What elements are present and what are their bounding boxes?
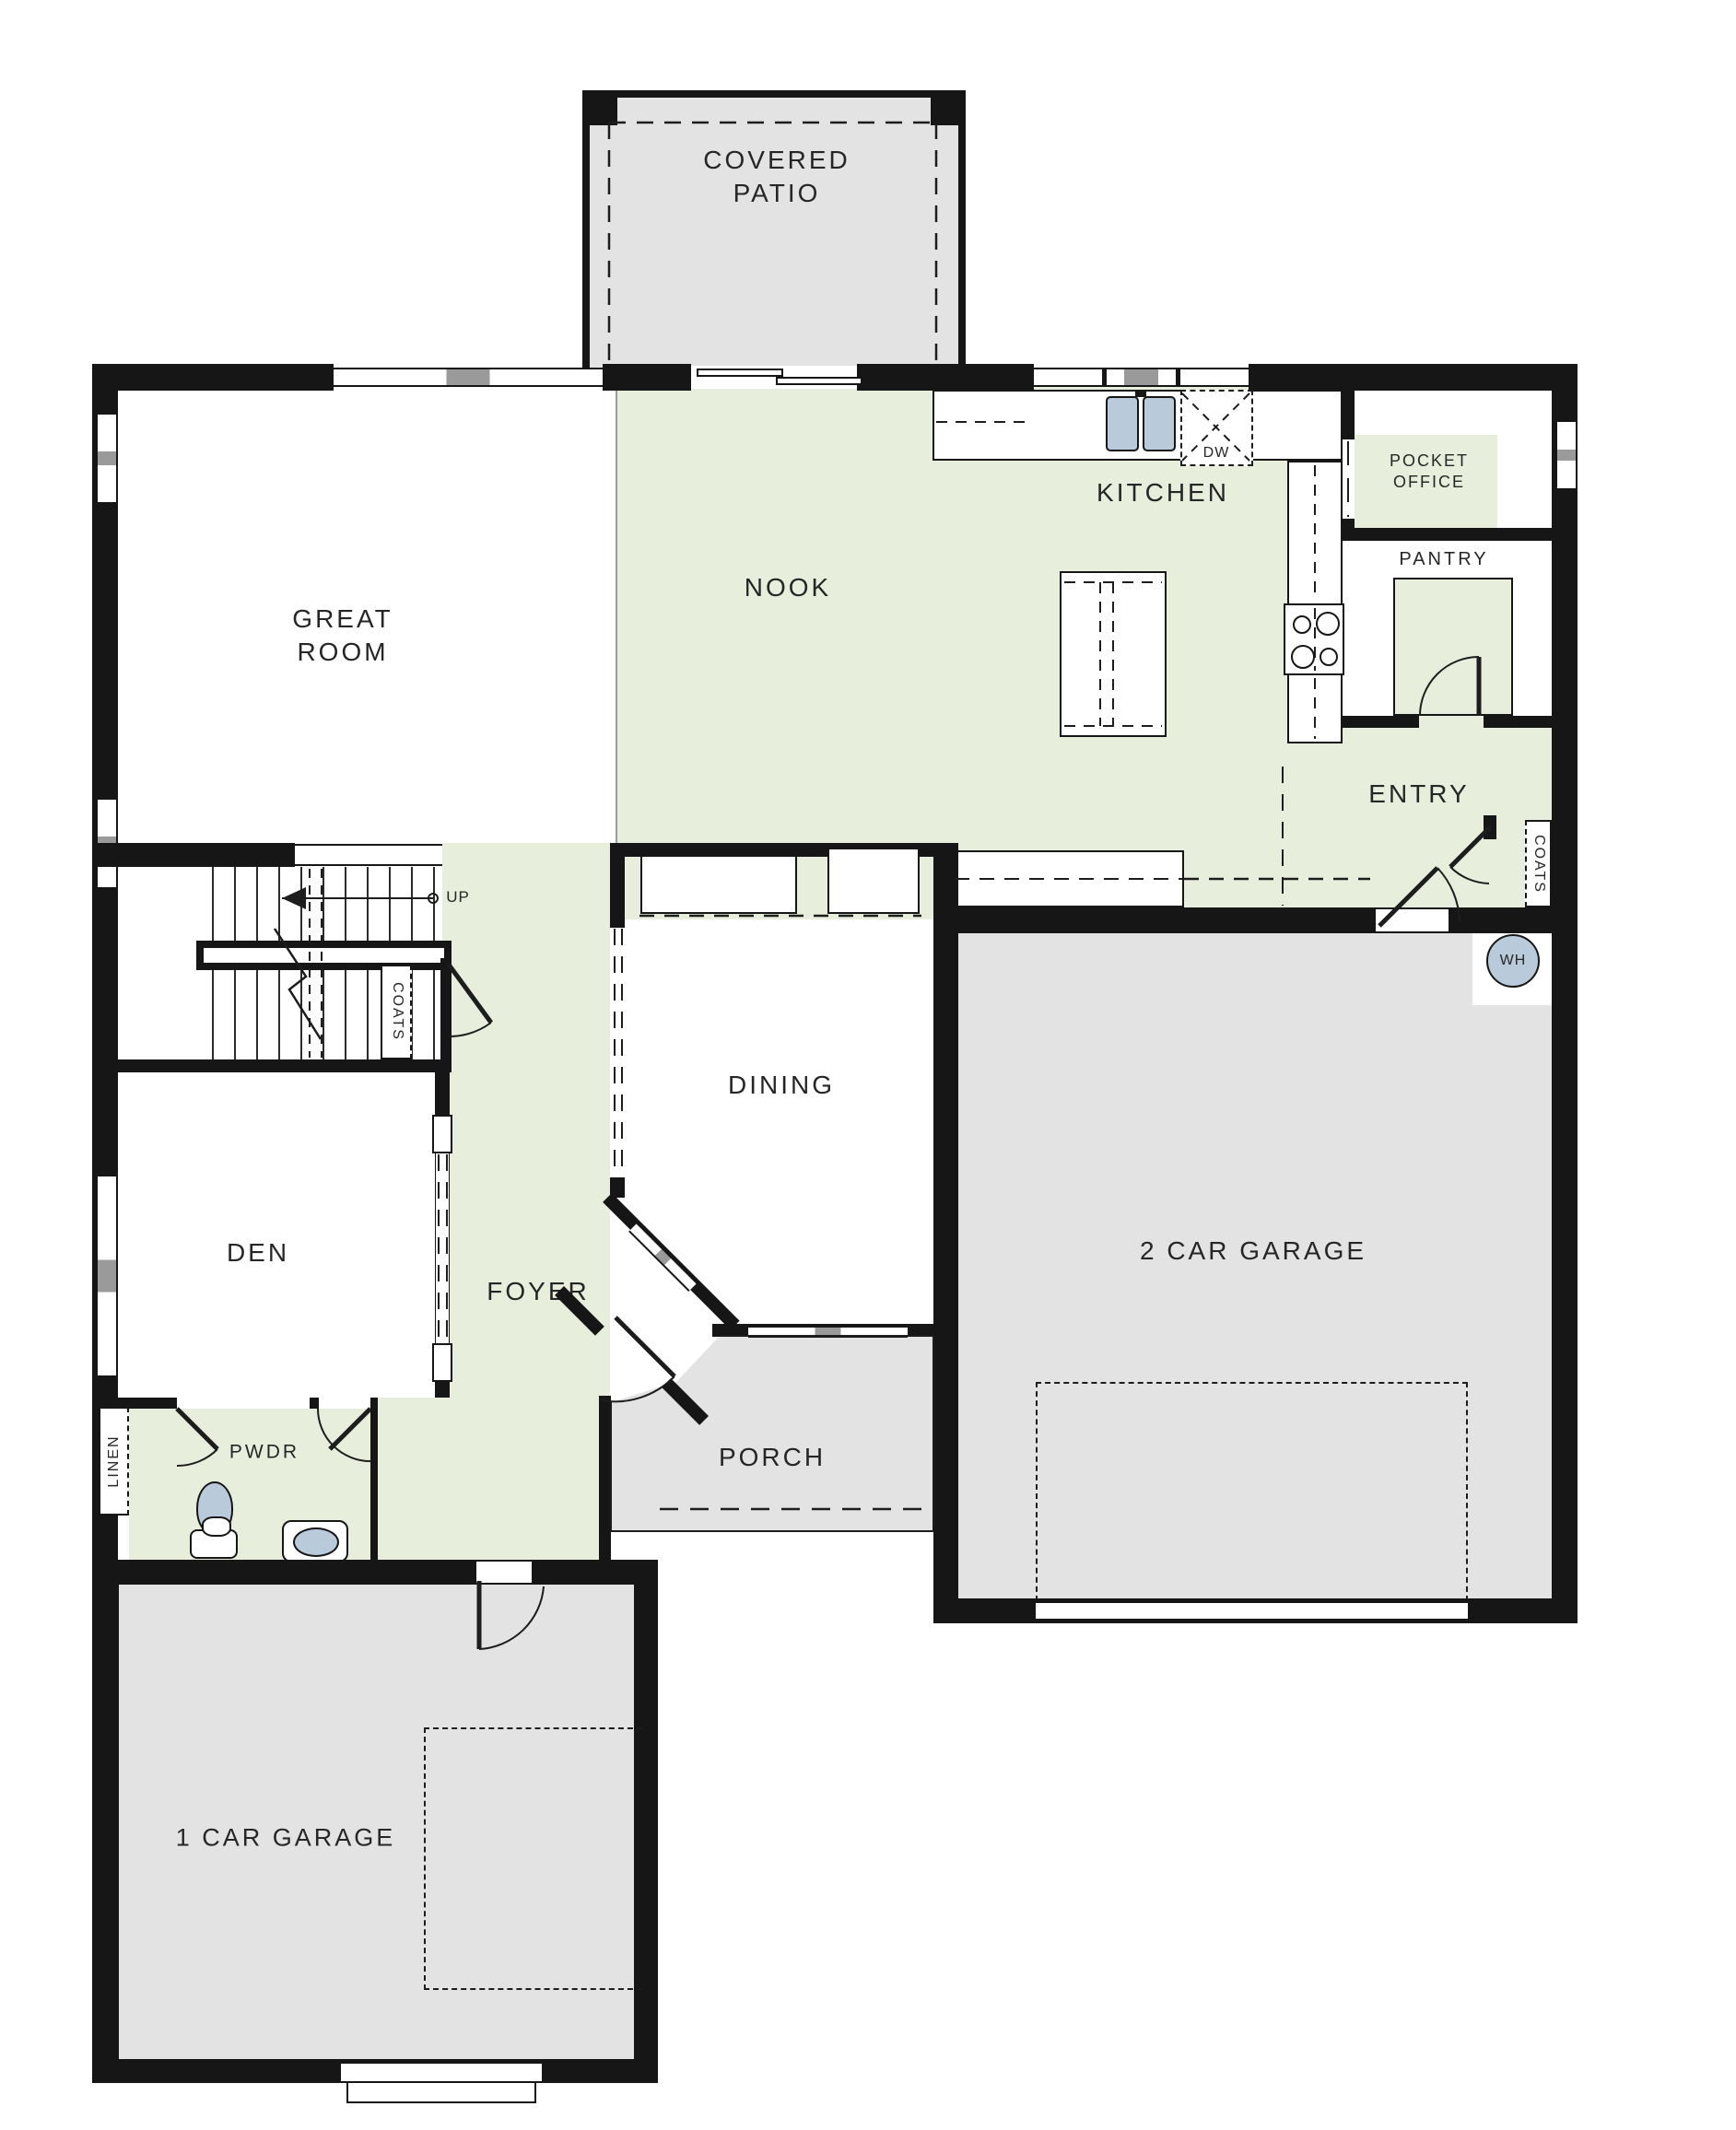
- island-dashed-lines: [1064, 582, 1162, 726]
- stair-annotations: [275, 869, 438, 1058]
- doors: [177, 657, 1491, 1649]
- cased-opening-dashes: [439, 441, 1348, 1342]
- porch-outline: [611, 1336, 933, 1531]
- annotation-overlay: [0, 0, 1736, 2130]
- floor-plan: COVERED PATIO GREAT ROOM UP COATS DEN PW…: [0, 0, 1736, 2130]
- counter-dashed-lines: [639, 879, 1370, 916]
- kitchen-dashed-lines: [936, 393, 1315, 739]
- patio-dashed-outline: [609, 123, 936, 370]
